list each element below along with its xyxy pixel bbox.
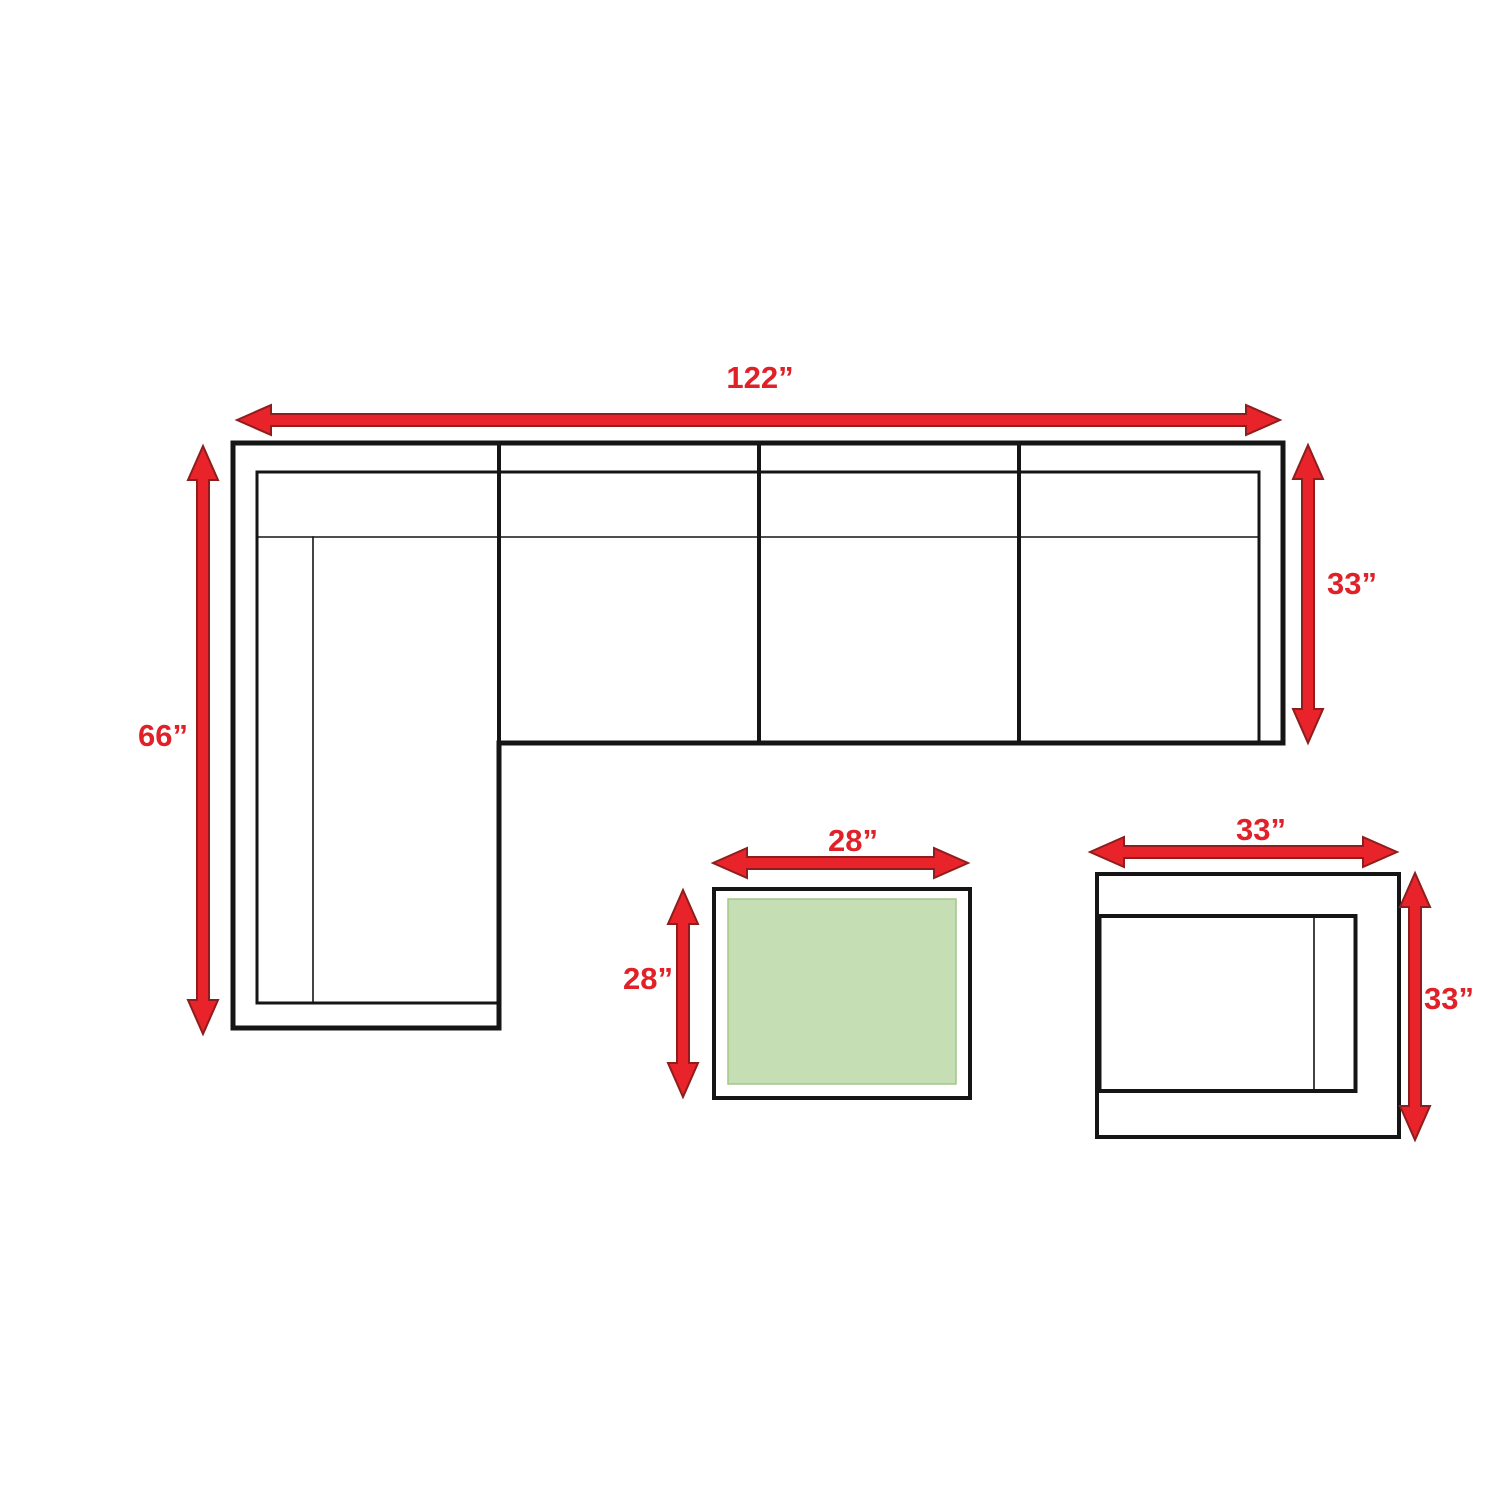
- coffee-table-depth-label: 28”: [623, 961, 673, 996]
- side-table: 33” 33”: [1090, 812, 1474, 1140]
- sectional-depth-label: 33”: [1327, 566, 1377, 601]
- coffee-table: 28” 28”: [623, 823, 970, 1098]
- sectional-height-label: 66”: [138, 718, 188, 753]
- coffee-table-width-label: 28”: [828, 823, 878, 858]
- furniture-dimension-diagram: 122” 66” 33” 28” 28” 33”: [0, 0, 1500, 1500]
- sectional-width-arrow: [237, 405, 1280, 435]
- side-table-depth-label: 33”: [1424, 981, 1474, 1016]
- sectional-depth-arrow: [1293, 445, 1323, 743]
- dimension-diagram-svg: 122” 66” 33” 28” 28” 33”: [0, 0, 1500, 1500]
- sectional-height-arrow: [188, 446, 218, 1034]
- sectional-width-label: 122”: [726, 360, 793, 395]
- coffee-table-glass-top: [728, 899, 956, 1084]
- side-table-width-label: 33”: [1236, 812, 1286, 847]
